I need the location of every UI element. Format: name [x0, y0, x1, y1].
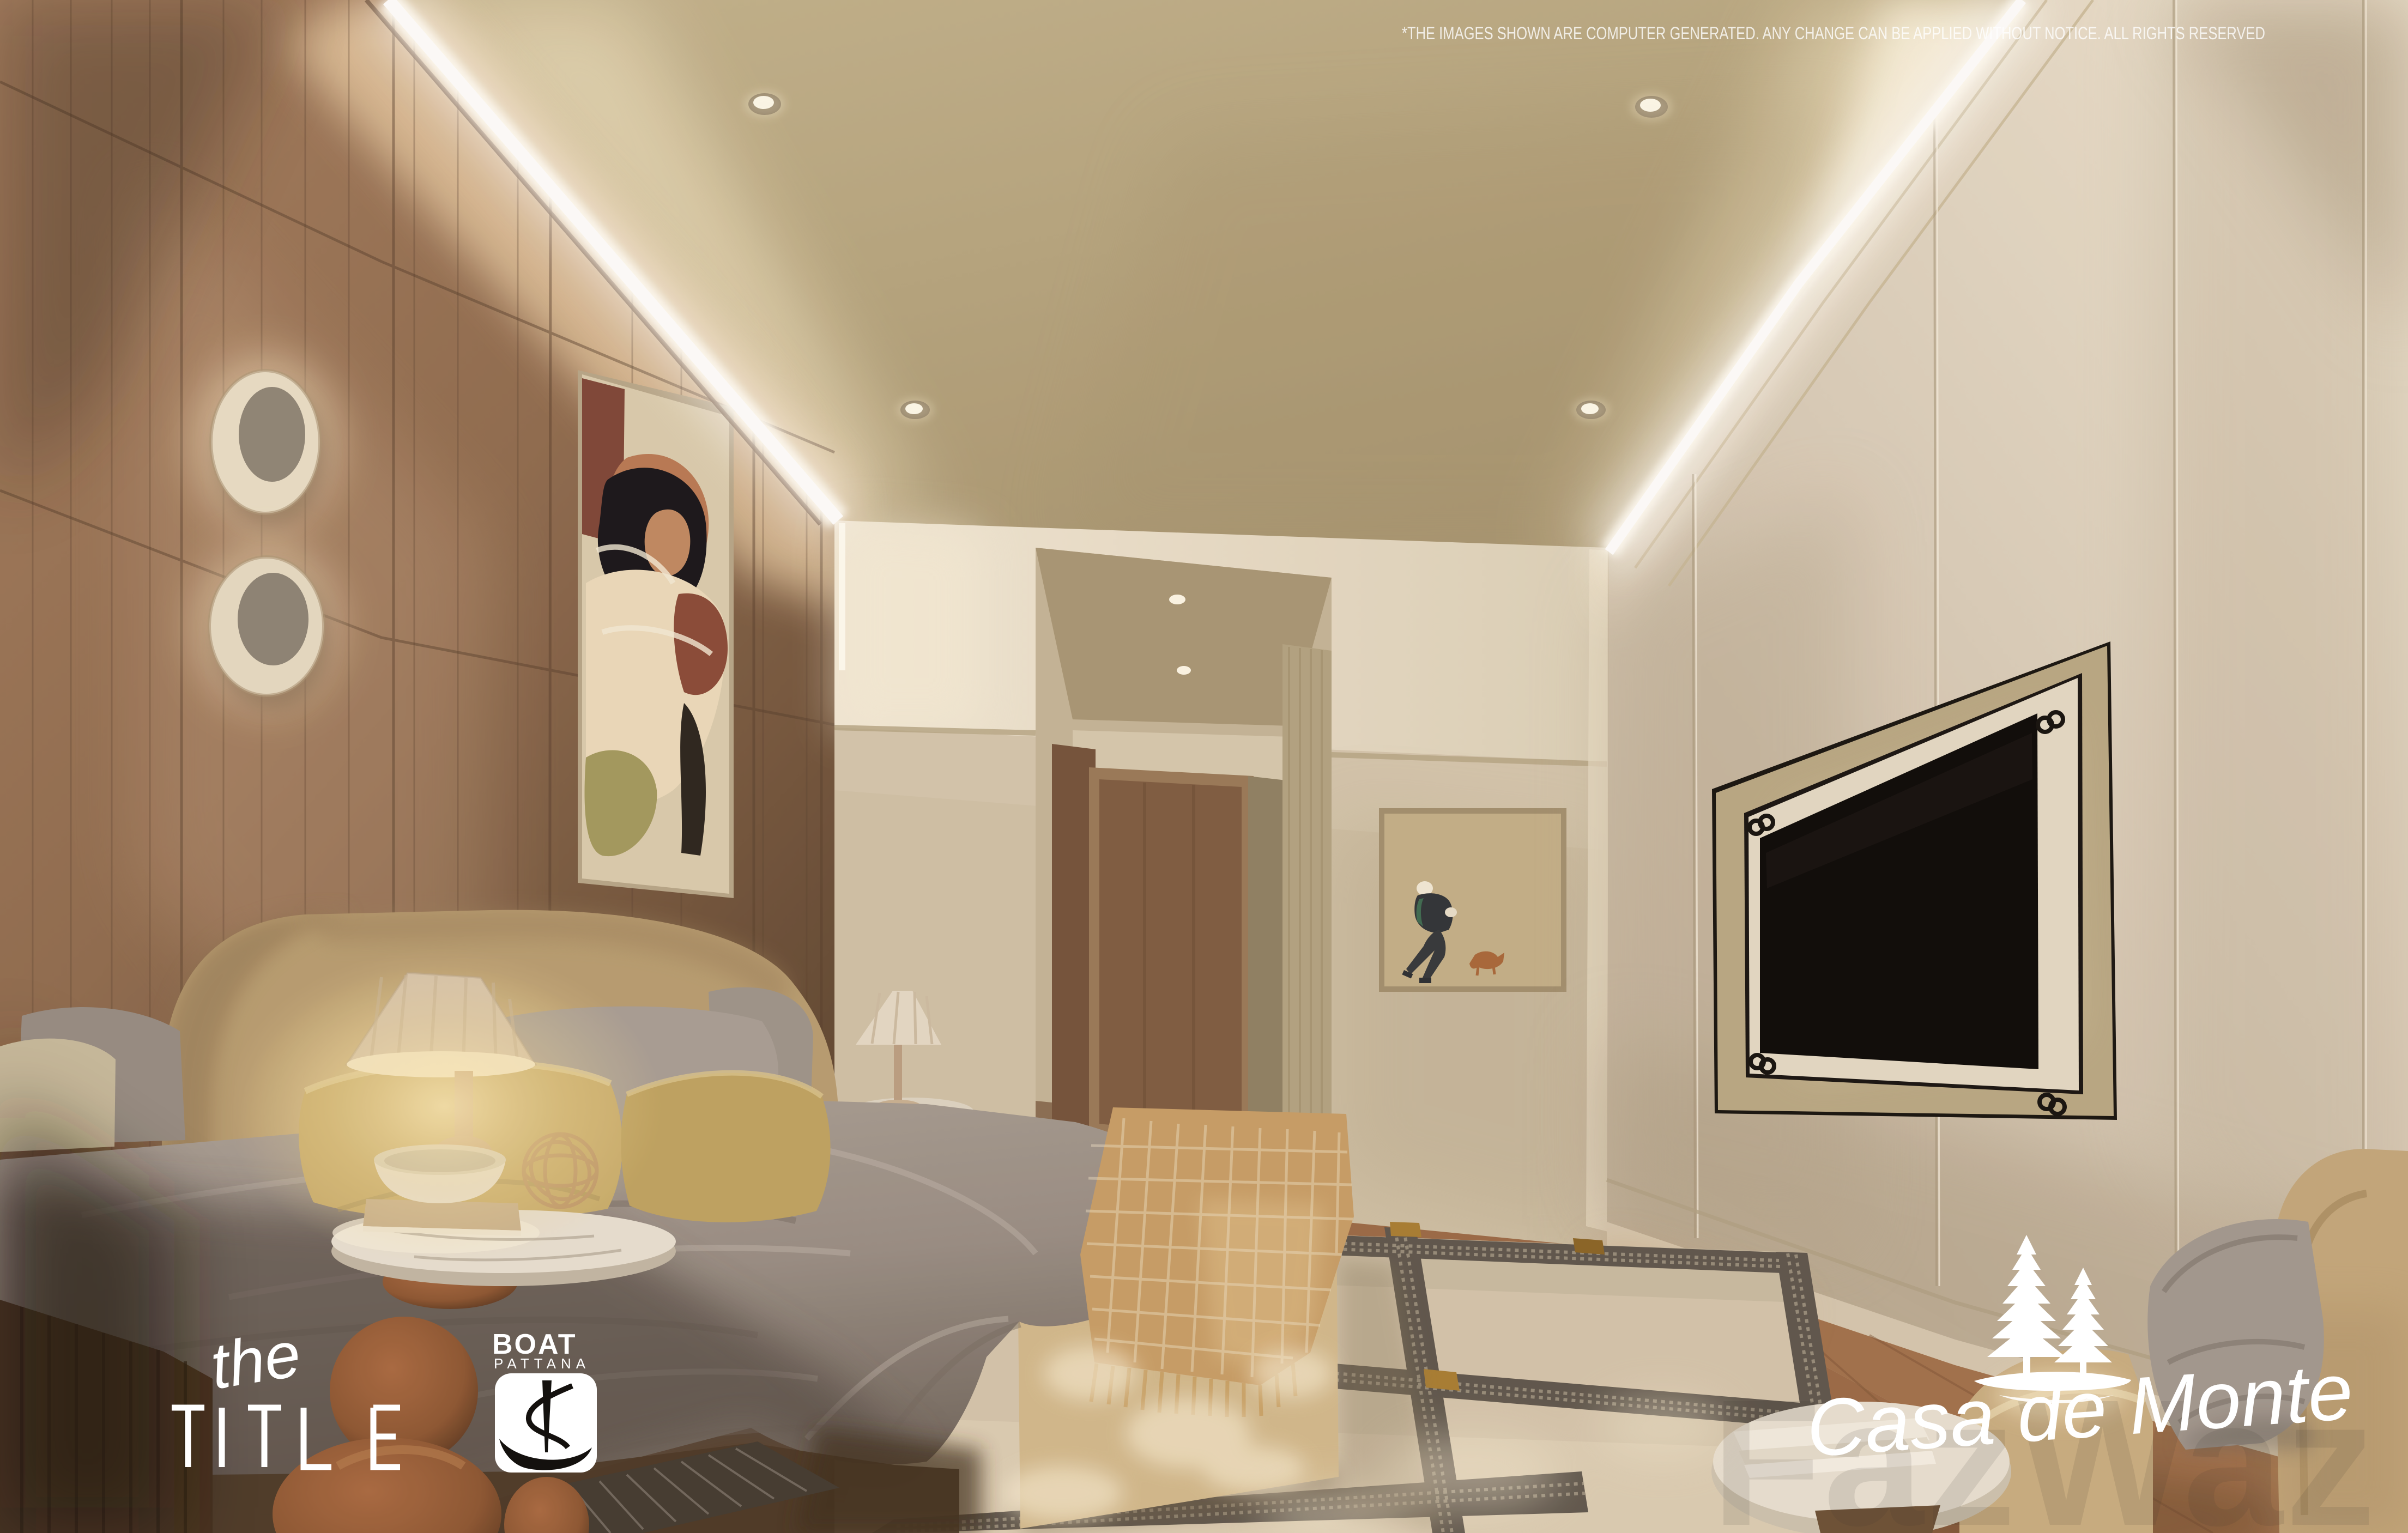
svg-text:*THE IMAGES SHOWN ARE COMPUTER: *THE IMAGES SHOWN ARE COMPUTER GENERATED… [1402, 23, 2265, 43]
svg-text:PATTANA: PATTANA [494, 1355, 590, 1372]
svg-text:the: the [205, 1318, 305, 1403]
